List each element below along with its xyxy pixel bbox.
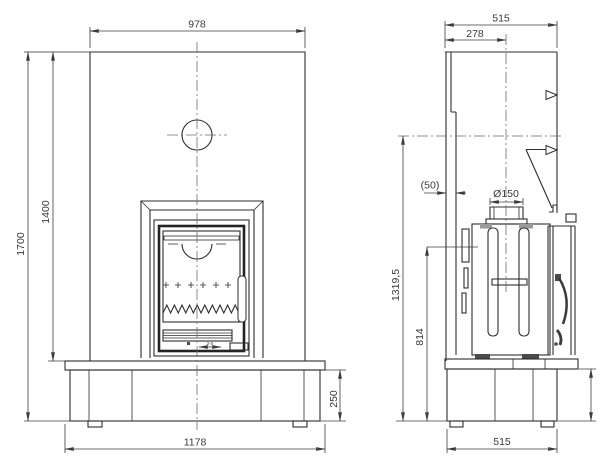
dim-front-plinth-height: 250	[320, 370, 346, 421]
dim-label-278: 278	[466, 28, 484, 40]
technical-drawing-canvas: 2-0 978 1700 1400	[0, 0, 600, 474]
dim-label-1319-5: 1319,5	[390, 269, 402, 301]
stove-foot-rear	[475, 354, 490, 359]
damper-plate	[566, 214, 576, 222]
dim-label-515-top: 515	[492, 13, 510, 25]
front-plinth	[70, 370, 320, 427]
insert-micro-dimension: 2-0	[199, 341, 221, 347]
stove-body-side	[462, 224, 575, 359]
side-bench-slab	[445, 359, 578, 369]
front-bench-slab	[65, 361, 325, 370]
dim-label-814: 814	[414, 328, 426, 346]
side-plinth	[447, 369, 557, 427]
insert-louver-grille	[163, 330, 232, 341]
flue-pipe	[486, 207, 527, 224]
dim-flue-offset: 278	[445, 28, 506, 40]
air-arrow-upper	[546, 91, 557, 100]
damper-diagonal	[526, 150, 552, 209]
dim-label-250: 250	[328, 390, 340, 408]
dim-rear-clearance: (50)	[421, 180, 466, 194]
air-arrow-lower	[546, 146, 557, 155]
side-dimensions: 515 278 (50) Ø150 1319,5	[390, 13, 596, 454]
side-centerlines	[398, 34, 563, 292]
dim-label-1700: 1700	[15, 232, 27, 256]
dim-label-1178: 1178	[184, 437, 207, 449]
slot-crossbar	[492, 279, 527, 285]
door-handle-side	[554, 274, 566, 346]
side-foot-front	[541, 421, 554, 427]
dim-flue-center-height: 1319,5	[390, 136, 403, 421]
dim-flue-diameter: Ø150	[490, 188, 523, 205]
side-view: 515 278 (50) Ø150 1319,5	[390, 13, 596, 454]
air-outlet-arrows	[526, 91, 576, 223]
dim-label-50: (50)	[421, 180, 440, 192]
door-handle-front	[238, 276, 246, 322]
side-foot-rear	[450, 421, 463, 427]
dim-front-bench-height: 1400	[40, 52, 53, 361]
dim-label-515-bottom: 515	[493, 436, 511, 448]
front-foot-right	[293, 421, 307, 427]
damper-bracket	[549, 205, 557, 213]
insert-air-bar	[164, 236, 239, 240]
convection-slot-rear	[488, 228, 498, 336]
dim-label-1400: 1400	[40, 200, 52, 224]
insert-latch-dot	[187, 342, 190, 345]
dim-side-depth-top: 515	[445, 13, 557, 49]
stove-insert-front: 2-0	[154, 220, 249, 356]
dim-side-plinth-unlabeled	[558, 369, 596, 421]
dim-front-base-width: 1178	[65, 424, 325, 453]
dim-label-o150: Ø150	[493, 188, 519, 200]
dim-side-depth-bottom: 515	[447, 429, 557, 453]
insert-glass	[163, 231, 240, 322]
stove-foot-front	[522, 354, 539, 359]
front-foot-left	[88, 421, 102, 427]
fireplace-drawing: 2-0 978 1700 1400	[0, 0, 600, 474]
insert-door-frame	[159, 226, 244, 351]
dim-front-total-height: 1700	[15, 52, 28, 421]
insert-ashlip	[230, 343, 248, 350]
micro-dim-label: 2-0	[207, 341, 214, 346]
front-view: 2-0 978 1700 1400	[15, 19, 346, 454]
dim-front-width: 978	[90, 19, 305, 49]
insert-zigzag	[163, 305, 239, 313]
dim-label-978: 978	[188, 19, 206, 31]
